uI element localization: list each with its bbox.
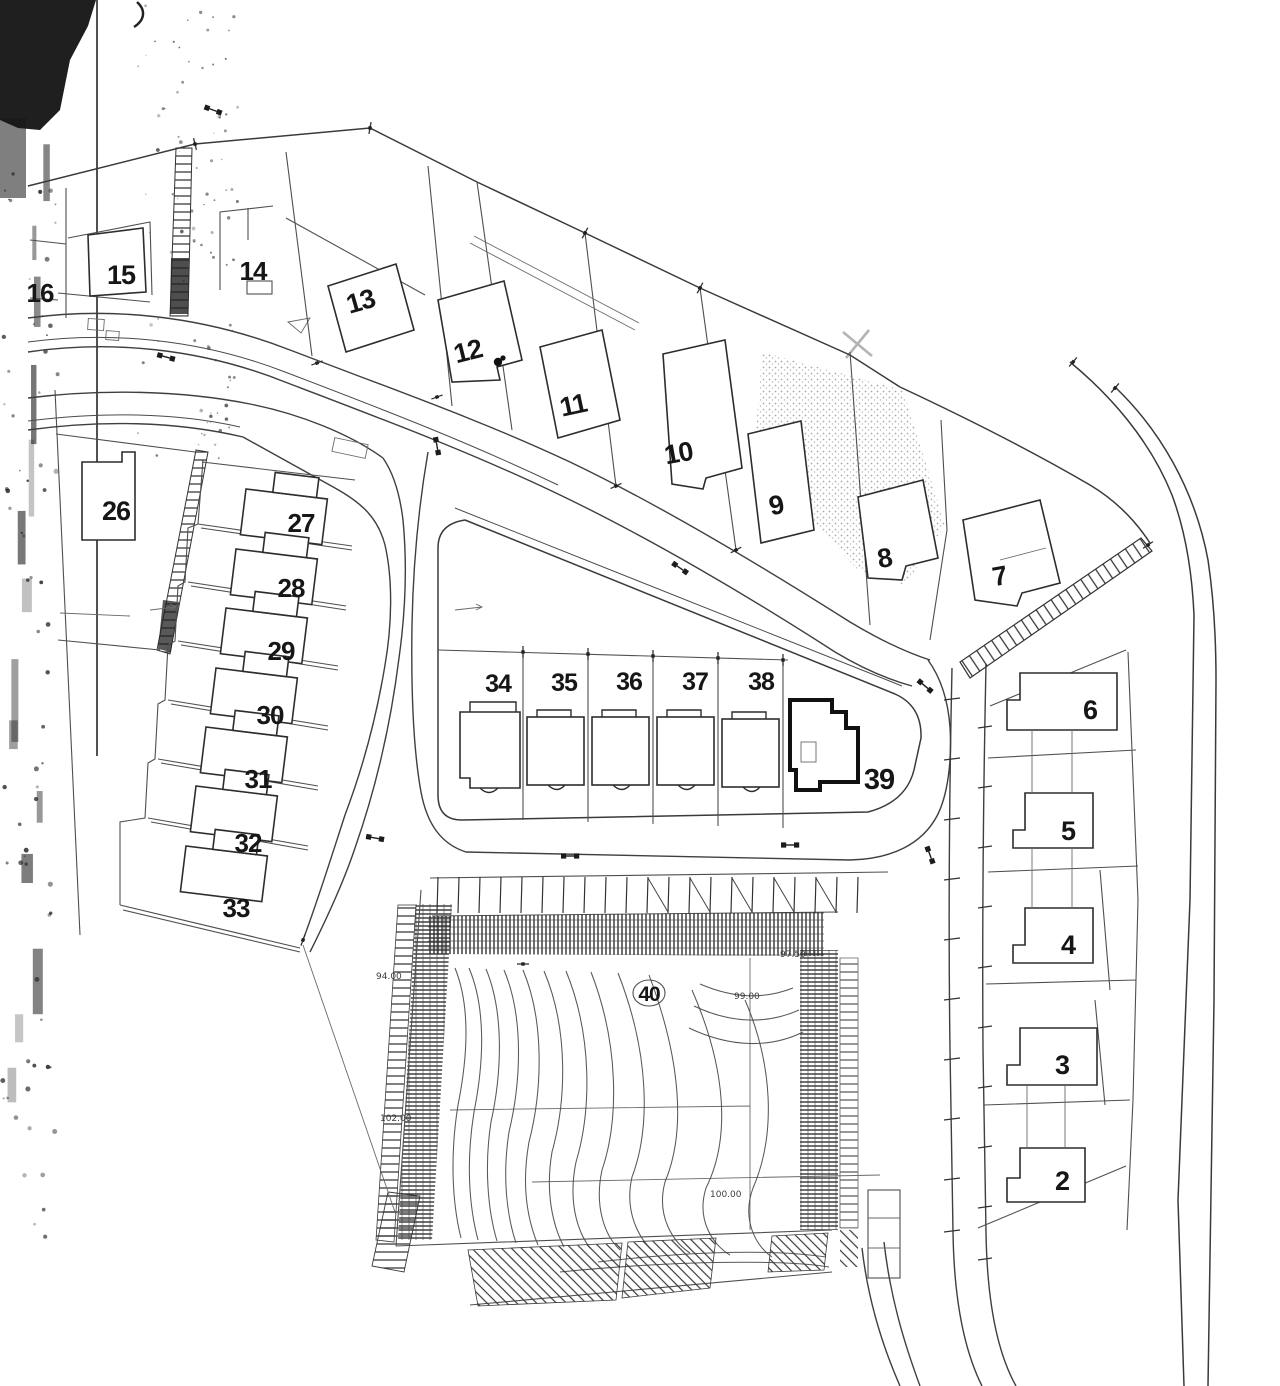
scan-speckle [203, 204, 204, 205]
scan-speckle [225, 417, 229, 421]
lot38-house [722, 712, 779, 792]
parking-diagonal [816, 878, 836, 912]
scan-speckle [39, 463, 43, 467]
second-road-sidewalk [28, 415, 240, 427]
scan-speckle [229, 380, 231, 382]
scan-speckle [11, 172, 14, 175]
scan-speckle [137, 432, 139, 434]
lot-label-6: 6 [1083, 695, 1098, 725]
scan-fold-line [96, 0, 98, 756]
scan-speckle [42, 1208, 46, 1212]
survey-tick [944, 1230, 960, 1232]
scan-speckle [228, 29, 230, 31]
parking-tick [794, 877, 795, 913]
scan-speckle [155, 454, 158, 457]
scan-speckle [173, 41, 175, 43]
survey-marker [781, 842, 799, 847]
lot-label-15: 15 [107, 260, 136, 290]
scan-speckle [225, 189, 227, 191]
scan-speckle [48, 323, 53, 328]
scan-speckle [55, 203, 57, 205]
parking-tick [647, 877, 648, 913]
survey-tick [944, 1118, 960, 1120]
scan-blotch [0, 0, 96, 130]
scan-speckle [2, 785, 6, 789]
lot-label-27: 27 [288, 508, 315, 538]
scan-speckle [236, 200, 239, 203]
scan-speckle [193, 339, 196, 342]
survey-marker [924, 846, 935, 865]
lot39-house-bold [790, 700, 858, 790]
survey-marker [916, 678, 933, 694]
scan-speckle [34, 766, 39, 771]
parking-tick [689, 877, 690, 913]
parking-tick [542, 877, 543, 913]
scan-speckle [211, 231, 214, 234]
layby-mark [332, 438, 368, 459]
scan-speckle [40, 1173, 45, 1178]
island-tick [716, 652, 719, 664]
lot-label-32: 32 [235, 828, 262, 858]
lot6-house [1007, 673, 1117, 730]
scan-speckle [137, 65, 139, 67]
parking-tick [584, 877, 585, 913]
survey-tick [944, 1058, 960, 1060]
scan-speckle [40, 1018, 43, 1021]
lot35-house [527, 710, 584, 790]
scan-speckle [206, 29, 209, 32]
scan-streak [32, 226, 36, 260]
scan-streak [15, 1014, 23, 1042]
lot4-house [1013, 908, 1093, 963]
parking-tick [731, 877, 732, 913]
lot11-house [540, 330, 620, 438]
lot-label-38: 38 [748, 668, 775, 696]
scan-speckle [236, 106, 239, 109]
lots-top-row [438, 182, 1060, 640]
scan-speckle [157, 318, 159, 320]
scan-speckle [227, 386, 229, 388]
scan-speckle [210, 422, 211, 423]
hatch-patch-road-edge [840, 1230, 858, 1267]
scan-speckle [201, 433, 202, 434]
survey-symbols [157, 104, 1154, 1260]
boundary-tick [696, 282, 705, 294]
right-road-east-edge [983, 664, 1016, 1386]
parking-tick [458, 877, 459, 913]
parking-tick [521, 877, 522, 913]
scan-speckle [3, 1097, 5, 1099]
scan-speckle [41, 725, 45, 729]
scan-speckle [145, 193, 147, 195]
parking-diagonal [774, 878, 794, 912]
scan-speckle [7, 370, 10, 373]
scan-speckle [28, 1126, 32, 1130]
scan-streak [31, 365, 36, 444]
scan-speckle [43, 1235, 47, 1239]
lot-label-36: 36 [616, 668, 642, 696]
lot-label-40: 40 [638, 983, 660, 1006]
lot-label-30: 30 [257, 700, 284, 730]
block-right-column [978, 650, 1138, 1230]
scan-speckle [188, 61, 190, 63]
scan-speckle [230, 188, 233, 191]
lot5-house [1013, 793, 1093, 848]
scan-streak [33, 949, 43, 1015]
site-plan-page: 2345678910111213141516262728293031323334… [0, 0, 1280, 1386]
lot-label-28: 28 [278, 573, 305, 603]
west-boundary [55, 390, 80, 935]
parking-tick [857, 877, 858, 913]
embankment-top [428, 912, 824, 956]
scan-speckle [214, 199, 216, 201]
scan-speckle [214, 444, 216, 446]
survey-marker [204, 104, 223, 115]
scan-speckle [217, 412, 218, 413]
survey-tick [978, 786, 992, 788]
scan-speckle [172, 193, 174, 195]
scan-speckle [179, 140, 183, 144]
elevation-label: 97.50 [780, 950, 806, 960]
survey-tick [978, 1086, 992, 1088]
scan-speckle [228, 376, 231, 379]
scan-speckle [9, 199, 12, 202]
scan-speckle [144, 4, 147, 7]
lot-label-34: 34 [485, 670, 512, 698]
scan-speckle [226, 264, 228, 266]
scan-streak [22, 579, 32, 613]
lot-label-5: 5 [1061, 816, 1076, 846]
lot40-east-stairs [840, 958, 858, 1228]
scan-speckle [48, 913, 52, 917]
scan-speckle [156, 148, 160, 152]
handwritten-mark [134, 2, 143, 27]
parking-diagonal [648, 878, 668, 912]
scan-speckle [212, 256, 215, 259]
lot-label-10: 10 [662, 436, 695, 470]
scan-speckle [26, 1059, 30, 1063]
survey-tick [978, 966, 992, 968]
scan-speckle [232, 258, 235, 261]
boundary-tick [1068, 356, 1078, 367]
scan-speckle [32, 1064, 36, 1068]
scan-speckle [39, 580, 43, 584]
parking-tick [626, 877, 627, 913]
elevation-label: 99.00 [734, 992, 760, 1002]
scan-speckle [200, 244, 203, 247]
scan-speckle [213, 132, 214, 133]
scan-speckle [212, 64, 214, 66]
scan-speckle [46, 622, 51, 627]
parking-row [437, 877, 858, 913]
scan-speckle [196, 167, 198, 169]
island-tick [651, 650, 654, 662]
scan-speckle [177, 136, 179, 138]
scan-speckle [3, 403, 5, 405]
scan-speckle [227, 216, 230, 219]
bottom-hatch-strip-2 [622, 1238, 716, 1298]
scan-speckle [5, 487, 9, 491]
contour-lines [453, 968, 829, 1272]
driveway-mark [106, 331, 120, 341]
scan-streak [18, 511, 26, 565]
parking-diagonal [732, 878, 752, 912]
scan-streak [37, 791, 43, 823]
scan-speckle [192, 227, 196, 231]
survey-tick [944, 998, 960, 1000]
lot-label-26: 26 [102, 496, 131, 526]
scan-speckle [52, 1129, 57, 1134]
scan-speckle [4, 190, 6, 192]
scan-speckle [142, 361, 145, 364]
scan-speckle [19, 470, 21, 472]
scan-speckle [157, 114, 160, 117]
steps-structure [868, 1190, 900, 1278]
elevation-label: 94.00 [376, 972, 402, 982]
road-tick [431, 393, 443, 400]
scan-speckle [154, 40, 156, 42]
scan-speckle [210, 159, 213, 162]
elevation-label: 102.00 [380, 1114, 412, 1124]
scan-speckle [225, 58, 227, 60]
scan-speckle [178, 47, 180, 49]
scan-speckle [149, 323, 153, 327]
lot26-inner-line [60, 613, 130, 616]
bottom-hatch-strip-1 [468, 1243, 622, 1306]
lot-label-31: 31 [245, 764, 272, 794]
scan-speckle [203, 434, 206, 437]
scan-speckle [205, 192, 208, 195]
scan-speckle [25, 1086, 30, 1091]
right-road-west-edge [949, 668, 982, 1386]
scan-speckle [18, 822, 22, 826]
site-plan-drawing: 2345678910111213141516262728293031323334… [0, 0, 1280, 1386]
scan-speckle [181, 81, 184, 84]
survey-marker [671, 561, 689, 576]
road-flag-mark [288, 318, 310, 333]
lot-label-29: 29 [268, 636, 295, 666]
scan-speckle [33, 1223, 36, 1226]
parking-tick [479, 877, 480, 913]
island-tick [781, 654, 784, 666]
survey-tick [978, 1258, 992, 1260]
scan-speckle [49, 1066, 51, 1068]
scan-speckle [207, 345, 210, 348]
bottom-road-west-pair [862, 1242, 920, 1386]
scan-speckle [228, 426, 230, 428]
scan-speckle [41, 762, 43, 764]
scan-speckle [43, 488, 47, 492]
scan-speckle [45, 670, 49, 674]
lot40-north-line [430, 872, 888, 878]
scan-speckle [193, 239, 196, 242]
scan-speckle [176, 91, 179, 94]
survey-marker [157, 352, 176, 362]
lot-label-39: 39 [864, 764, 895, 796]
scan-speckle [199, 409, 203, 413]
scan-speckle [233, 376, 236, 379]
east-boundary-inner [1070, 362, 1194, 1386]
scan-speckle [218, 457, 220, 459]
scan-speckle [224, 404, 228, 408]
scan-speckle [212, 16, 214, 18]
scan-speckle [38, 190, 42, 194]
parking-tick [710, 877, 711, 913]
scan-speckle [145, 55, 146, 56]
lot27-house [240, 469, 329, 545]
scan-speckle [221, 159, 223, 161]
survey-tick [944, 758, 960, 760]
elevation-label: 100.00 [710, 1190, 742, 1200]
scan-speckle [36, 785, 39, 788]
survey-tick [944, 938, 960, 940]
island-tick [586, 648, 589, 660]
lot8-house [858, 480, 938, 580]
scan-speckle [36, 630, 40, 634]
parking-tick [605, 877, 606, 913]
boundary-tick [1110, 382, 1120, 393]
scan-speckle [24, 848, 29, 853]
scan-speckle [26, 479, 29, 482]
scan-speckle [201, 67, 203, 69]
scan-speckle [8, 507, 11, 510]
scan-speckle [225, 113, 227, 115]
lot7-house [963, 500, 1060, 606]
scan-streak [29, 440, 34, 517]
parking-tick [500, 877, 501, 913]
footpaths-and-stairs [157, 148, 1152, 1272]
lot-label-3: 3 [1055, 1050, 1070, 1080]
parking-diagonal [690, 878, 710, 912]
scan-speckle [14, 1115, 19, 1120]
scan-speckle [199, 11, 202, 14]
survey-tick [978, 906, 992, 908]
parking-tick [836, 877, 837, 913]
survey-tick [944, 878, 960, 880]
scan-streak [9, 720, 18, 749]
survey-tick [978, 1026, 992, 1028]
lot-label-2: 2 [1055, 1166, 1069, 1196]
scan-speckle [56, 372, 60, 376]
island-tick [521, 646, 524, 658]
parking-tick [752, 877, 753, 913]
lot-label-33: 33 [223, 893, 250, 923]
scan-speckle [54, 469, 59, 474]
survey-tick [944, 818, 960, 820]
road-tick [299, 934, 306, 946]
scan-streak [8, 1068, 17, 1103]
scan-streak [43, 144, 49, 201]
east-boundary-outer [1115, 387, 1216, 1386]
scan-speckle [11, 414, 14, 417]
scan-speckle [229, 324, 232, 327]
lot36-house [592, 710, 649, 790]
scan-speckle [46, 334, 48, 336]
driveway-mark [88, 318, 105, 330]
lot-label-4: 4 [1061, 930, 1076, 960]
bottom-hatch-strip-3 [768, 1233, 828, 1272]
lot-label-35: 35 [551, 669, 578, 697]
scan-speckle [48, 882, 53, 887]
scan-streak [21, 854, 32, 883]
parking-tick-mark [517, 962, 529, 965]
scan-speckle [38, 391, 41, 394]
survey-tick [978, 846, 992, 848]
scan-speckle [22, 1173, 26, 1177]
scan-speckles [0, 4, 239, 1238]
scan-speckle [206, 422, 208, 424]
scan-speckle [162, 107, 165, 110]
scan-speckle [187, 19, 188, 20]
scan-speckle [210, 413, 211, 414]
parking-tick [563, 877, 564, 913]
leader-arrow-island [455, 604, 482, 610]
survey-marker [433, 437, 441, 456]
survey-marker [366, 834, 385, 842]
scan-speckle [6, 861, 9, 864]
scan-speckle [45, 257, 50, 262]
parking-tick [773, 877, 774, 913]
stair-strip-15-14-dark [170, 258, 189, 314]
lot2-house [1007, 1148, 1085, 1202]
scan-speckle [0, 1078, 5, 1083]
lot-label-14: 14 [240, 256, 268, 286]
scan-speckle [2, 335, 6, 339]
scan-speckle [224, 129, 227, 132]
lot37-house [657, 710, 714, 790]
lot-label-37: 37 [682, 668, 708, 696]
parking-tick [815, 877, 816, 913]
lot34-house [460, 712, 520, 788]
scan-speckle [210, 252, 212, 254]
scan-speckle [54, 222, 56, 224]
parking-tick [668, 877, 669, 913]
scan-speckle [209, 415, 212, 418]
lot-label-16: 16 [27, 278, 54, 308]
scan-speckle [232, 15, 235, 18]
embankment-east [800, 950, 838, 1230]
lot12-house [438, 281, 522, 382]
lot3-house [1007, 1028, 1097, 1085]
scan-speckle [198, 444, 200, 446]
